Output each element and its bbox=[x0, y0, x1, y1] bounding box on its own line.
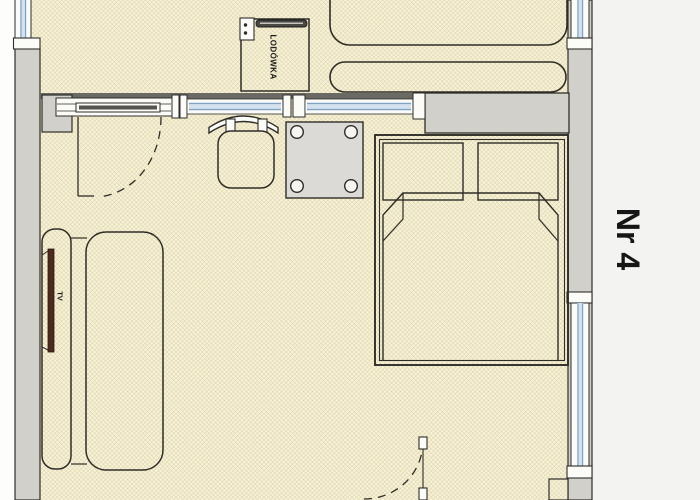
couch-body bbox=[86, 232, 163, 470]
pillow-right bbox=[478, 143, 558, 200]
pillow-left bbox=[383, 143, 463, 200]
partition-glazing-right bbox=[305, 99, 413, 114]
sliding-panel bbox=[56, 98, 172, 116]
window-top-right bbox=[567, 0, 592, 49]
tv-label: TV bbox=[56, 291, 65, 301]
right-wall bbox=[567, 0, 592, 500]
chair-seat bbox=[218, 131, 274, 188]
sofa-back bbox=[330, 0, 567, 45]
floor-plan-page: LODÓWKA TV bbox=[0, 0, 700, 500]
floor-plan-drawing: LODÓWKA TV bbox=[0, 0, 700, 500]
couch bbox=[42, 229, 163, 470]
partition-post bbox=[180, 95, 187, 118]
partition-post bbox=[172, 95, 179, 118]
partition-wall-fill bbox=[425, 93, 569, 133]
room-number-label: Nr 4 bbox=[610, 208, 646, 270]
left-wall bbox=[14, 0, 41, 500]
partition-post bbox=[293, 95, 305, 117]
partition-post bbox=[413, 93, 425, 119]
window-right-main bbox=[567, 292, 592, 478]
door-side-pier bbox=[549, 479, 568, 500]
fridge-hinge-plate bbox=[240, 18, 254, 40]
table-leg bbox=[345, 126, 358, 139]
partition-glazing-left bbox=[187, 99, 283, 114]
dining-table bbox=[286, 122, 363, 198]
fridge-label: LODÓWKA bbox=[269, 34, 278, 79]
partition-post bbox=[283, 95, 291, 117]
table-leg bbox=[291, 126, 304, 139]
sofa-seat bbox=[330, 62, 566, 92]
table-leg bbox=[345, 180, 358, 193]
tv-screen bbox=[48, 249, 54, 352]
window-sill bbox=[14, 38, 41, 49]
table-leg bbox=[291, 180, 304, 193]
refrigerator: LODÓWKA bbox=[240, 18, 309, 91]
